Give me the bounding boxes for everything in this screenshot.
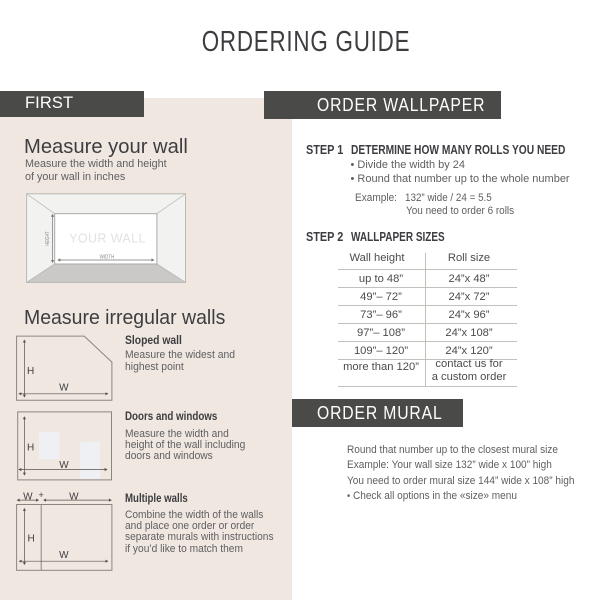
svg-text:H: H xyxy=(27,366,34,377)
svg-text:W: W xyxy=(59,550,69,561)
svg-text:W: W xyxy=(59,460,69,471)
svg-text:H: H xyxy=(27,443,34,454)
svg-text:H: H xyxy=(28,534,35,545)
svg-text:HEIGHT: HEIGHT xyxy=(45,231,51,246)
svg-text:+: + xyxy=(38,490,43,500)
svg-text:W: W xyxy=(23,491,33,502)
svg-text:W: W xyxy=(59,383,69,394)
svg-text:W: W xyxy=(69,491,79,502)
svg-text:YOUR WALL: YOUR WALL xyxy=(69,232,146,246)
svg-text:WIDTH: WIDTH xyxy=(100,255,115,261)
